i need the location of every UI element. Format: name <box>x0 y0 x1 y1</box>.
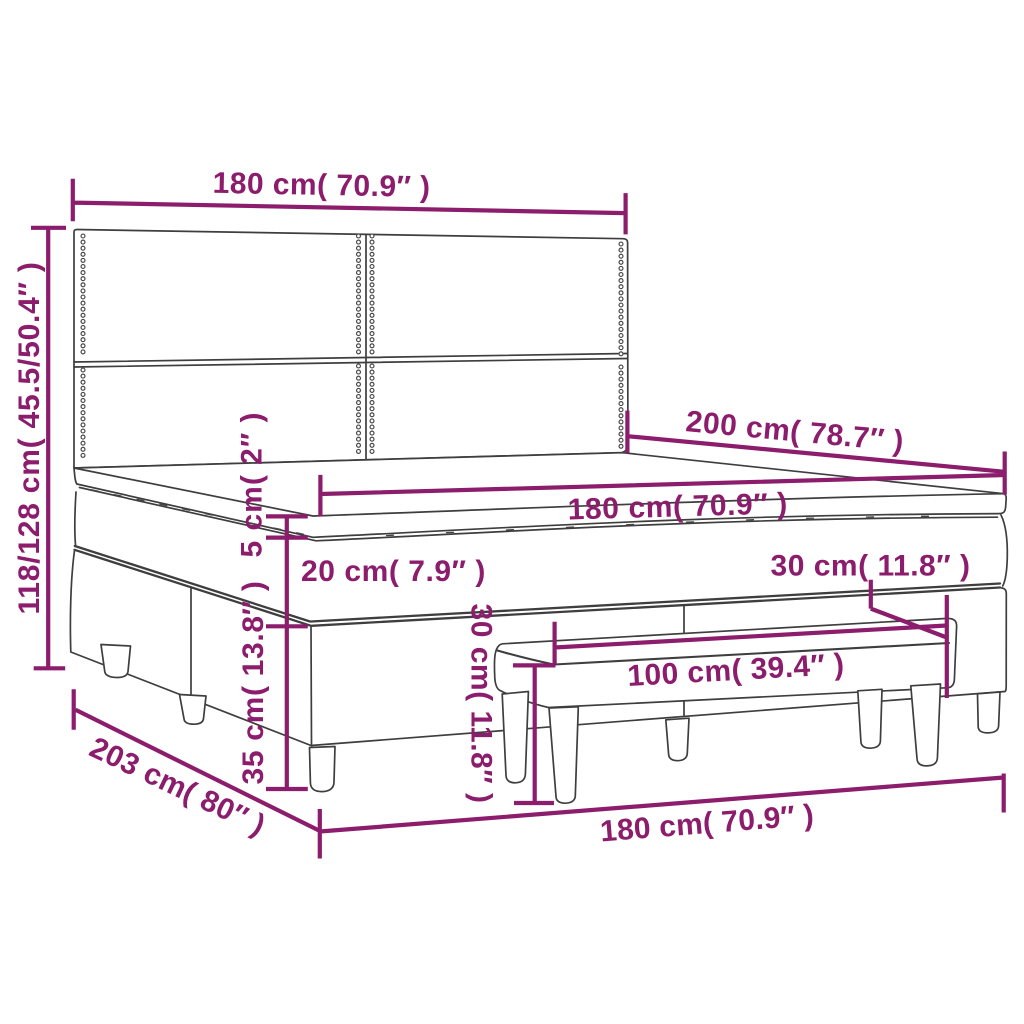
svg-text:118/128 cm( 45.5/50.4″ ): 118/128 cm( 45.5/50.4″ ) <box>13 261 46 614</box>
svg-text:30 cm( 11.8″ ): 30 cm( 11.8″ ) <box>771 550 971 583</box>
svg-text:180 cm( 70.9″ ): 180 cm( 70.9″ ) <box>212 167 431 204</box>
svg-text:30 cm( 11.8″ ): 30 cm( 11.8″ ) <box>465 604 498 804</box>
svg-text:35 cm( 13.8″ ): 35 cm( 13.8″ ) <box>237 581 270 785</box>
svg-text:180 cm( 70.9″ ): 180 cm( 70.9″ ) <box>567 487 788 526</box>
svg-text:5 cm( 2″ ): 5 cm( 2″ ) <box>236 412 269 558</box>
svg-text:20 cm( 7.9″ ): 20 cm( 7.9″ ) <box>301 555 486 588</box>
